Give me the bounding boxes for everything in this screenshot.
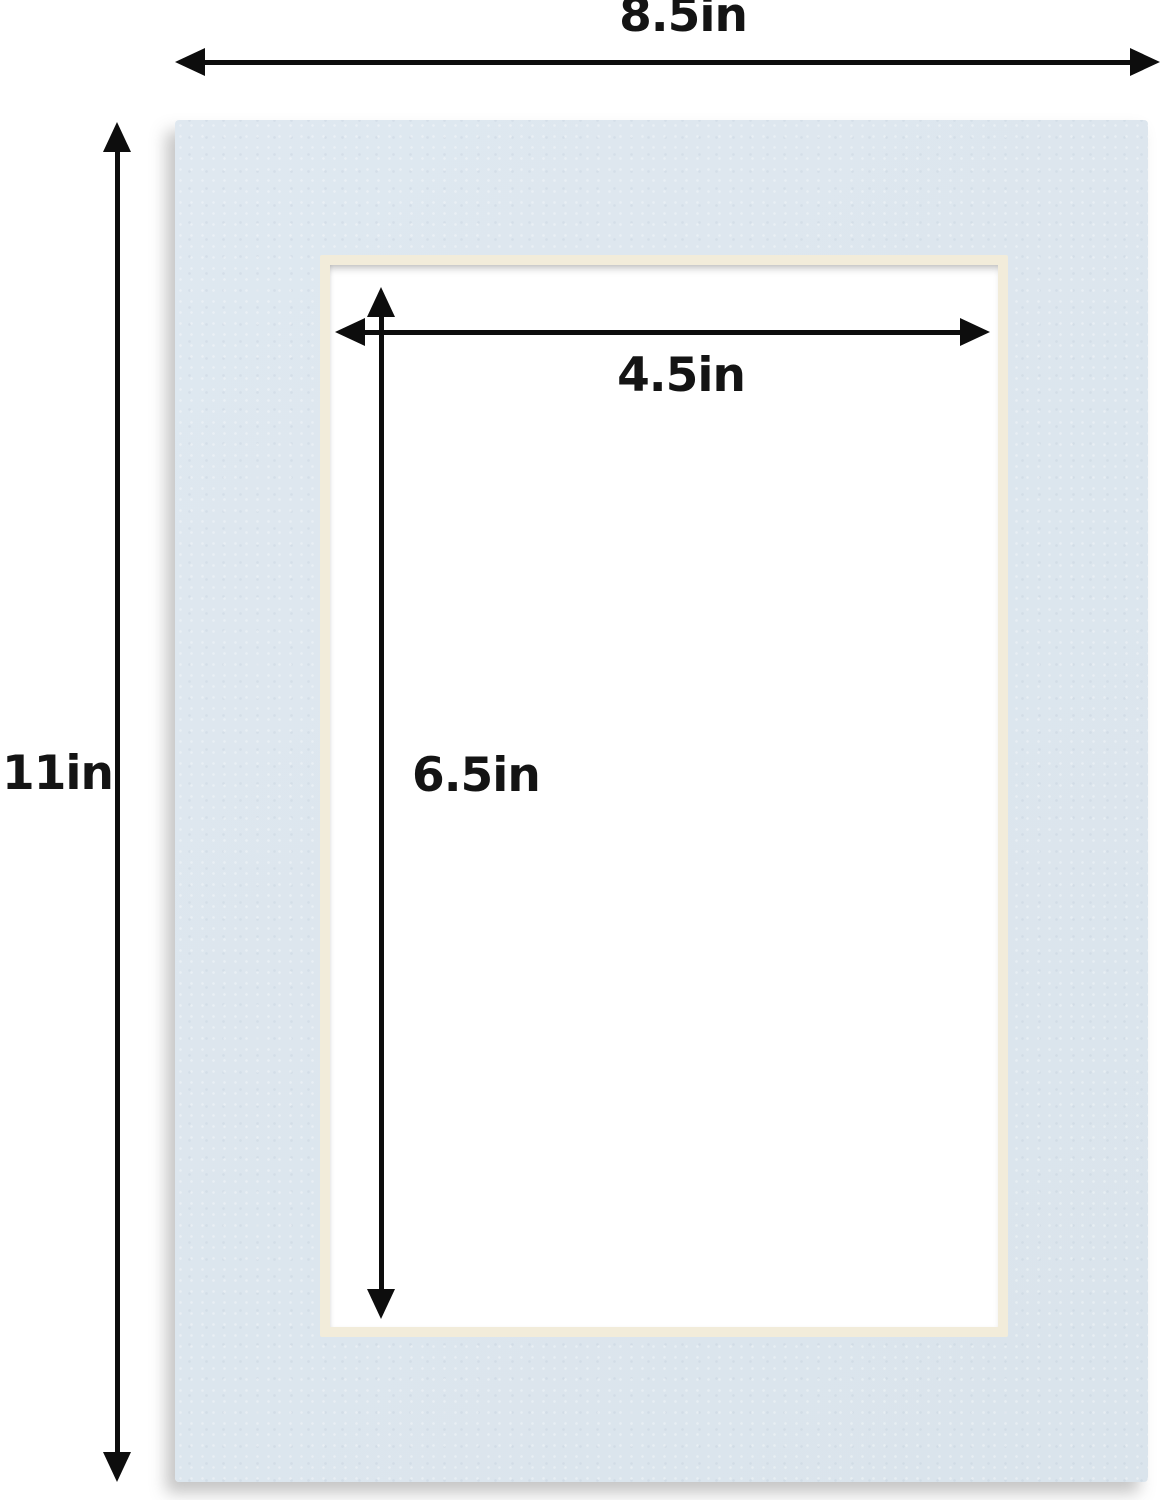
- opening-width-label: 4.5in: [617, 350, 745, 402]
- arrowhead-left-icon: [175, 48, 205, 76]
- outer-height-dimension-arrow: [103, 122, 131, 1482]
- opening-height-label: 6.5in: [412, 750, 540, 802]
- outer-width-label: 8.5in: [619, 0, 747, 42]
- arrow-shaft: [115, 152, 120, 1452]
- outer-width-dimension-arrow: [175, 48, 1160, 76]
- arrowhead-down-icon: [367, 1289, 395, 1319]
- arrow-shaft: [379, 317, 384, 1289]
- outer-height-label: 11in: [2, 748, 113, 800]
- arrowhead-down-icon: [103, 1452, 131, 1482]
- arrowhead-left-icon: [335, 318, 365, 346]
- opening-width-dimension-arrow: [335, 318, 990, 346]
- opening-height-dimension-arrow: [367, 287, 395, 1319]
- arrow-shaft: [205, 60, 1130, 65]
- diagram-canvas: 8.5in 11in 4.5in 6.5in: [0, 0, 1167, 1500]
- arrowhead-up-icon: [367, 287, 395, 317]
- arrowhead-right-icon: [1130, 48, 1160, 76]
- arrowhead-up-icon: [103, 122, 131, 152]
- arrow-shaft: [365, 330, 960, 335]
- arrowhead-right-icon: [960, 318, 990, 346]
